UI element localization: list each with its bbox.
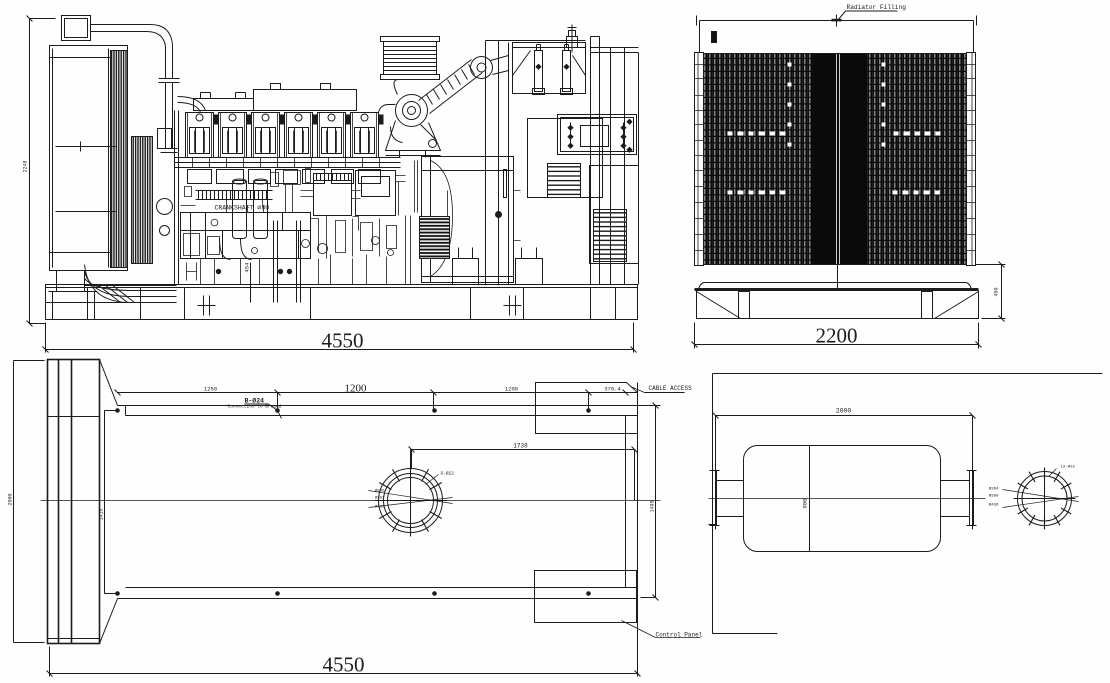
svg-text:Ø306: Ø306 bbox=[375, 489, 385, 494]
svg-text:Ø380: Ø380 bbox=[989, 494, 999, 499]
svg-text:1738: 1738 bbox=[513, 443, 528, 450]
svg-text:CRANKSHAFT ∅80: CRANKSHAFT ∅80 bbox=[215, 205, 270, 212]
svg-text:6-Ø22: 6-Ø22 bbox=[441, 470, 455, 477]
svg-text:4550: 4550 bbox=[323, 653, 365, 677]
svg-text:1415: 1415 bbox=[99, 508, 105, 520]
svg-text:1250: 1250 bbox=[204, 386, 217, 393]
svg-text:2000: 2000 bbox=[836, 408, 852, 415]
svg-text:1495: 1495 bbox=[650, 500, 656, 512]
svg-text:4550: 4550 bbox=[322, 329, 364, 353]
svg-text:1200: 1200 bbox=[345, 383, 368, 395]
svg-text:12-Ø22: 12-Ø22 bbox=[1061, 465, 1076, 470]
svg-text:2200: 2200 bbox=[816, 324, 858, 348]
svg-text:Radiator Filling: Radiator Filling bbox=[847, 4, 907, 11]
svg-text:CABLE ACCESS: CABLE ACCESS bbox=[649, 385, 693, 392]
svg-text:1200: 1200 bbox=[505, 386, 518, 393]
svg-text:454: 454 bbox=[244, 262, 251, 273]
svg-text:Ø436: Ø436 bbox=[989, 503, 999, 508]
svg-text:2000: 2000 bbox=[8, 493, 14, 505]
svg-text:2248: 2248 bbox=[23, 160, 29, 172]
svg-text:B-Ø24: B-Ø24 bbox=[245, 397, 265, 405]
svg-text:Ø364: Ø364 bbox=[989, 487, 999, 492]
svg-text:450: 450 bbox=[994, 287, 1000, 296]
svg-text:Ø436: Ø436 bbox=[375, 505, 385, 510]
svg-text:800: 800 bbox=[802, 499, 809, 509]
svg-text:370.4: 370.4 bbox=[604, 386, 621, 393]
svg-text:Ø381: Ø381 bbox=[375, 496, 385, 501]
